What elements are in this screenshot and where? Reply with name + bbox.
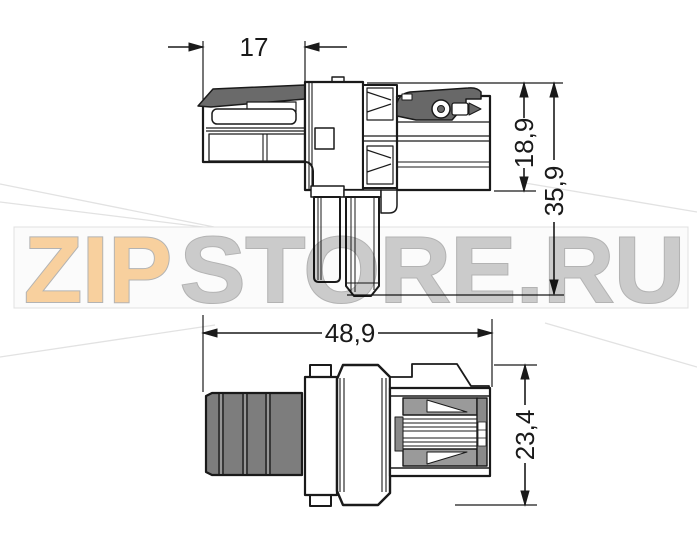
lever-edge-profile: [390, 364, 489, 388]
arrowhead: [520, 83, 528, 97]
socket-front: [390, 388, 490, 476]
dim-label-23-4: 23,4: [510, 410, 540, 461]
cable-strain-relief: [206, 393, 302, 475]
dim-label-35-9: 35,9: [539, 166, 569, 217]
dim-label-18-9: 18,9: [509, 118, 539, 169]
watermark-text-store: STORE.RU: [180, 217, 685, 322]
arrowhead: [203, 329, 217, 337]
flange: [305, 365, 337, 506]
arrowhead: [521, 365, 529, 379]
dim-label-48-9: 48,9: [325, 318, 376, 348]
housing-window: [315, 128, 334, 149]
dim-label-17: 17: [240, 32, 269, 62]
arrowhead: [550, 83, 558, 97]
bottom-view-drawing: [206, 364, 490, 506]
arrowhead: [521, 491, 529, 505]
connector-dimension-drawing: 17 18,9 35,9 48: [0, 0, 697, 543]
plug-body: [198, 85, 305, 162]
arrowhead: [305, 43, 319, 51]
arrowhead: [478, 329, 492, 337]
arrowhead: [189, 43, 203, 51]
watermark-text-zip: ZIP: [24, 217, 172, 322]
arrowhead: [520, 177, 528, 191]
